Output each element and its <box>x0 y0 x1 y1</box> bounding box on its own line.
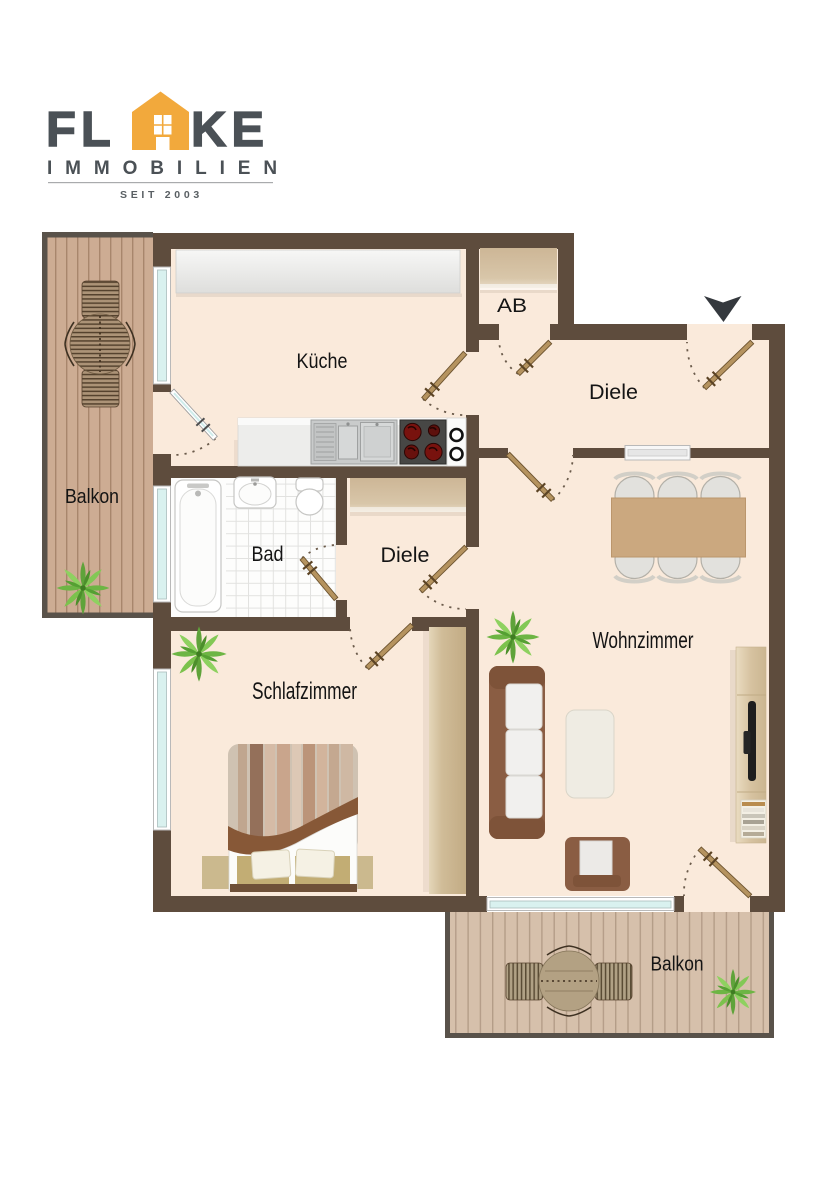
svg-text:Bad: Bad <box>252 543 284 566</box>
svg-text:FL: FL <box>46 103 116 157</box>
svg-text:IMMOBILIEN: IMMOBILIEN <box>47 158 290 179</box>
svg-text:Wohnzimmer: Wohnzimmer <box>593 627 694 653</box>
svg-text:Küche: Küche <box>297 350 348 373</box>
svg-text:Balkon: Balkon <box>651 954 704 976</box>
svg-text:Diele: Diele <box>589 381 638 404</box>
svg-text:KE: KE <box>191 103 269 157</box>
svg-text:AB: AB <box>497 296 527 317</box>
svg-text:Diele: Diele <box>381 544 430 567</box>
svg-text:Balkon: Balkon <box>65 486 119 508</box>
svg-text:SEIT 2003: SEIT 2003 <box>120 189 203 201</box>
svg-text:Schlafzimmer: Schlafzimmer <box>252 678 357 705</box>
